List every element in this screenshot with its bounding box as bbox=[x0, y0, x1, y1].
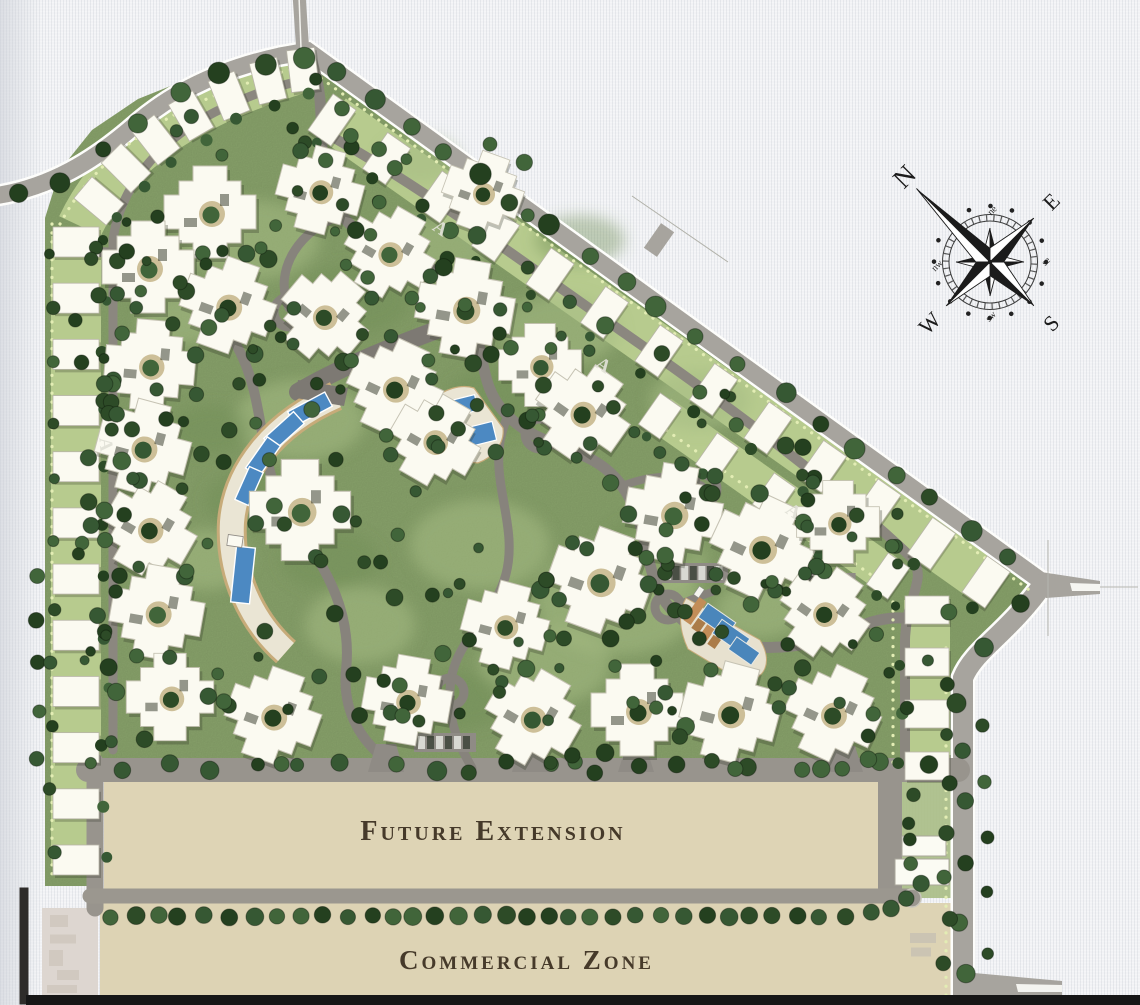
tree bbox=[113, 452, 131, 470]
tree bbox=[522, 302, 532, 312]
tree bbox=[293, 908, 309, 924]
tree bbox=[657, 547, 674, 564]
tree bbox=[427, 761, 446, 780]
tree bbox=[687, 329, 703, 345]
zone-bands bbox=[42, 772, 956, 1004]
tree bbox=[221, 422, 237, 438]
tree bbox=[47, 356, 59, 368]
tree bbox=[861, 729, 875, 743]
plan-detail bbox=[963, 972, 1062, 996]
tree bbox=[709, 567, 723, 581]
tree bbox=[834, 697, 846, 709]
tree bbox=[884, 667, 895, 678]
tree bbox=[136, 731, 153, 748]
tree bbox=[248, 344, 257, 353]
compass-rose: N E S W ne se sw nw bbox=[826, 100, 1126, 400]
tree bbox=[133, 561, 145, 573]
tree bbox=[902, 817, 914, 829]
tree bbox=[283, 704, 294, 715]
tree bbox=[275, 332, 286, 343]
plan-detail bbox=[50, 915, 68, 927]
site-plan-svg: AAAA N E S W ne se sw nw bbox=[0, 0, 1140, 1005]
hedge-bush bbox=[98, 570, 109, 581]
tree bbox=[422, 354, 435, 367]
tree bbox=[958, 855, 974, 871]
tree bbox=[462, 633, 476, 647]
tree bbox=[255, 242, 267, 254]
tree bbox=[789, 908, 806, 925]
tree bbox=[97, 532, 112, 547]
tree bbox=[620, 506, 637, 523]
tree bbox=[340, 259, 351, 270]
tree bbox=[1012, 595, 1030, 613]
tree bbox=[521, 261, 534, 274]
tree bbox=[200, 258, 212, 270]
tree bbox=[336, 198, 349, 211]
courtyard-tree bbox=[533, 360, 548, 375]
compass-se-label: se bbox=[1040, 256, 1053, 269]
tree bbox=[327, 63, 345, 81]
tree bbox=[80, 450, 96, 466]
compass-sw-label: sw bbox=[984, 310, 999, 325]
tree bbox=[751, 485, 769, 503]
tree bbox=[168, 908, 185, 925]
tree bbox=[30, 568, 45, 583]
tree bbox=[680, 492, 692, 504]
plan-detail bbox=[227, 535, 243, 548]
tree bbox=[96, 502, 113, 519]
tree bbox=[361, 271, 375, 285]
tree bbox=[48, 846, 61, 859]
tree bbox=[112, 568, 128, 584]
tree bbox=[49, 474, 59, 484]
tree bbox=[74, 355, 89, 370]
tree bbox=[374, 555, 388, 569]
tree bbox=[654, 346, 670, 362]
tree bbox=[730, 357, 745, 372]
tree bbox=[640, 576, 657, 593]
tree bbox=[358, 556, 371, 569]
tree bbox=[30, 655, 44, 669]
tree bbox=[782, 680, 797, 695]
tree bbox=[270, 220, 282, 232]
tree bbox=[403, 118, 420, 135]
tree bbox=[798, 567, 811, 580]
tree bbox=[238, 245, 255, 262]
tree bbox=[451, 422, 466, 437]
tree bbox=[801, 520, 814, 533]
tree bbox=[860, 751, 877, 768]
tree bbox=[619, 614, 635, 630]
tree bbox=[46, 720, 58, 732]
tree bbox=[293, 143, 309, 159]
tree bbox=[330, 227, 339, 236]
tree bbox=[151, 907, 168, 924]
tree bbox=[416, 199, 430, 213]
tree bbox=[794, 660, 811, 677]
tree bbox=[941, 728, 953, 740]
tree bbox=[571, 452, 582, 463]
tree bbox=[395, 708, 410, 723]
tree bbox=[728, 761, 743, 776]
plan-detail bbox=[57, 970, 79, 980]
tree bbox=[329, 452, 344, 467]
tree bbox=[675, 908, 692, 925]
tree bbox=[159, 412, 174, 427]
tree bbox=[552, 592, 567, 607]
tree bbox=[498, 906, 516, 924]
tree bbox=[692, 632, 706, 646]
tree bbox=[435, 645, 451, 661]
tree bbox=[47, 301, 61, 315]
tree bbox=[582, 909, 598, 925]
tree bbox=[335, 101, 350, 116]
tree bbox=[654, 447, 666, 459]
tree bbox=[565, 536, 579, 550]
tree bbox=[43, 783, 56, 796]
tree bbox=[922, 655, 933, 666]
tree bbox=[178, 416, 189, 427]
tree bbox=[596, 744, 614, 762]
tree bbox=[404, 908, 422, 926]
tree bbox=[545, 342, 557, 354]
compass-south-label: S bbox=[1038, 310, 1064, 336]
tree bbox=[128, 114, 147, 133]
tree bbox=[806, 475, 820, 489]
tree bbox=[501, 404, 514, 417]
tree bbox=[318, 153, 333, 168]
tree bbox=[835, 761, 850, 776]
tree bbox=[904, 857, 918, 871]
tree bbox=[920, 756, 938, 774]
tree bbox=[255, 54, 276, 75]
tree bbox=[488, 664, 499, 675]
courtyard-tree bbox=[203, 207, 220, 224]
tree bbox=[715, 625, 729, 639]
tree bbox=[379, 428, 393, 442]
tree bbox=[410, 486, 421, 497]
tree bbox=[939, 825, 954, 840]
tree bbox=[450, 345, 459, 354]
tree bbox=[171, 82, 191, 102]
tree bbox=[811, 909, 827, 925]
tree bbox=[454, 708, 465, 719]
tree bbox=[940, 677, 954, 691]
tree bbox=[978, 775, 992, 789]
tree bbox=[352, 707, 368, 723]
tree bbox=[443, 588, 453, 598]
tree bbox=[766, 575, 779, 588]
tree bbox=[405, 291, 419, 305]
tree bbox=[493, 686, 506, 699]
tree bbox=[999, 549, 1015, 565]
tree bbox=[96, 142, 111, 157]
tree bbox=[584, 345, 596, 357]
tree bbox=[556, 631, 571, 646]
tree bbox=[704, 663, 718, 677]
tree bbox=[866, 707, 880, 721]
tree bbox=[287, 122, 299, 134]
tree bbox=[936, 956, 951, 971]
tree bbox=[253, 373, 266, 386]
tree bbox=[202, 538, 213, 549]
tree bbox=[941, 604, 957, 620]
tree bbox=[365, 291, 379, 305]
tree bbox=[937, 870, 951, 884]
tree bbox=[99, 353, 109, 363]
tree bbox=[208, 62, 230, 84]
tree bbox=[795, 762, 810, 777]
compass-ne-label: ne bbox=[986, 204, 999, 217]
tree bbox=[364, 228, 377, 241]
tree bbox=[592, 381, 603, 392]
tree bbox=[127, 907, 145, 925]
tree bbox=[257, 623, 273, 639]
tree bbox=[678, 604, 693, 619]
tree bbox=[435, 144, 452, 161]
tree bbox=[535, 377, 551, 393]
tree bbox=[534, 437, 544, 447]
courtyard-tree bbox=[292, 504, 311, 523]
tree bbox=[274, 756, 289, 771]
tree bbox=[942, 776, 957, 791]
tree bbox=[340, 909, 355, 924]
tree bbox=[465, 355, 482, 372]
tree bbox=[347, 222, 364, 239]
tree bbox=[580, 542, 594, 556]
compass-east-label: E bbox=[1038, 188, 1065, 215]
tree bbox=[645, 296, 666, 317]
tree bbox=[365, 89, 385, 109]
tree bbox=[151, 210, 164, 223]
tree bbox=[672, 729, 688, 745]
tree bbox=[741, 907, 758, 924]
tree bbox=[385, 909, 401, 925]
plan-detail bbox=[1016, 984, 1062, 992]
tree bbox=[493, 327, 507, 341]
tree bbox=[563, 295, 577, 309]
tree bbox=[813, 416, 829, 432]
tree bbox=[658, 685, 673, 700]
tree bbox=[514, 637, 524, 647]
parked-car bbox=[690, 566, 697, 580]
master-plan-page: AAAA N E S W ne se sw nw Future Extensio… bbox=[0, 0, 1140, 1005]
tree bbox=[627, 907, 643, 923]
tree bbox=[80, 494, 97, 511]
tree bbox=[582, 248, 599, 265]
tree bbox=[711, 585, 721, 595]
tree bbox=[699, 907, 715, 923]
tree bbox=[84, 252, 97, 265]
tree bbox=[848, 639, 857, 648]
tree bbox=[115, 326, 130, 341]
tree bbox=[597, 317, 614, 334]
tree bbox=[863, 904, 879, 920]
tree bbox=[653, 907, 668, 922]
tree bbox=[333, 506, 350, 523]
tree bbox=[764, 907, 780, 923]
courtyard-tree bbox=[831, 517, 846, 532]
tree bbox=[982, 948, 994, 960]
plan-detail bbox=[50, 935, 76, 944]
tree bbox=[675, 457, 690, 472]
plan-detail bbox=[910, 933, 936, 943]
tree bbox=[195, 907, 212, 924]
tree bbox=[564, 748, 580, 764]
tree bbox=[372, 142, 387, 157]
hedge-bush bbox=[97, 801, 109, 813]
tree bbox=[89, 608, 105, 624]
tree bbox=[544, 630, 556, 642]
plan-detail bbox=[49, 950, 63, 966]
tree bbox=[83, 517, 99, 533]
tree bbox=[483, 346, 499, 362]
tree bbox=[161, 755, 178, 772]
tree bbox=[707, 468, 723, 484]
tree bbox=[426, 373, 438, 385]
tree bbox=[776, 383, 796, 403]
tree bbox=[560, 909, 576, 925]
tree bbox=[48, 535, 59, 546]
tree bbox=[501, 194, 518, 211]
tree bbox=[312, 669, 327, 684]
tree bbox=[981, 886, 993, 898]
tree bbox=[184, 109, 198, 123]
tree bbox=[483, 137, 497, 151]
tree bbox=[107, 683, 124, 700]
tree bbox=[86, 647, 96, 657]
tree bbox=[883, 900, 900, 917]
tree bbox=[461, 765, 476, 780]
tree bbox=[693, 385, 707, 399]
tree bbox=[668, 706, 677, 715]
tree bbox=[189, 387, 203, 401]
tree bbox=[343, 128, 358, 143]
tree bbox=[201, 319, 217, 335]
tree bbox=[251, 758, 264, 771]
tree bbox=[521, 209, 534, 222]
tree bbox=[602, 630, 619, 647]
tree bbox=[117, 507, 132, 522]
tree bbox=[187, 347, 204, 364]
tree bbox=[165, 317, 179, 331]
tree bbox=[907, 788, 921, 802]
tree bbox=[812, 760, 829, 777]
tree bbox=[942, 911, 957, 926]
tree bbox=[200, 761, 218, 779]
tree bbox=[704, 486, 720, 502]
tree bbox=[48, 604, 60, 616]
tree bbox=[518, 908, 535, 925]
tree bbox=[849, 508, 864, 523]
tree bbox=[314, 907, 330, 923]
tree bbox=[50, 173, 70, 193]
tree bbox=[651, 655, 662, 666]
tree bbox=[539, 572, 555, 588]
tree bbox=[356, 328, 368, 340]
tree bbox=[429, 405, 444, 420]
tree bbox=[119, 244, 135, 260]
tree bbox=[587, 765, 603, 781]
tree bbox=[777, 437, 794, 454]
tree bbox=[474, 906, 491, 923]
tree bbox=[921, 489, 937, 505]
tree bbox=[458, 298, 472, 312]
tree bbox=[704, 753, 719, 768]
tree bbox=[720, 908, 738, 926]
plan-detail bbox=[1070, 583, 1100, 591]
tree bbox=[105, 736, 117, 748]
scan-edge-bar bbox=[26, 995, 1140, 1005]
tree bbox=[110, 287, 124, 301]
tree bbox=[629, 427, 640, 438]
tree bbox=[649, 701, 662, 714]
tree bbox=[504, 340, 519, 355]
tree bbox=[729, 418, 743, 432]
tree bbox=[101, 630, 112, 641]
tree bbox=[277, 517, 292, 532]
tree bbox=[142, 256, 151, 265]
tree bbox=[694, 517, 709, 532]
tree bbox=[947, 694, 966, 713]
parked-car bbox=[681, 566, 688, 580]
tree bbox=[216, 149, 228, 161]
tree bbox=[290, 758, 303, 771]
tree bbox=[326, 605, 343, 622]
tree bbox=[401, 154, 412, 165]
tree bbox=[609, 660, 622, 673]
hedge-bush bbox=[101, 852, 112, 863]
tree bbox=[173, 275, 187, 289]
tree bbox=[668, 756, 685, 773]
tree bbox=[728, 572, 741, 585]
tree bbox=[365, 908, 380, 923]
tree bbox=[525, 409, 538, 422]
tree bbox=[331, 754, 348, 771]
tree bbox=[583, 437, 597, 451]
tree bbox=[892, 508, 904, 520]
tree bbox=[293, 47, 315, 69]
tree bbox=[468, 226, 486, 244]
tree bbox=[233, 377, 246, 390]
tree bbox=[772, 701, 786, 715]
parked-car bbox=[454, 736, 461, 749]
tree bbox=[129, 649, 143, 663]
parked-car bbox=[463, 736, 470, 749]
tree bbox=[350, 516, 361, 527]
tree bbox=[631, 758, 647, 774]
tree bbox=[493, 303, 506, 316]
tree bbox=[450, 907, 468, 925]
tree bbox=[470, 398, 483, 411]
tree bbox=[606, 400, 620, 414]
tree bbox=[384, 329, 398, 343]
tree bbox=[913, 875, 930, 892]
tree bbox=[200, 688, 217, 705]
tree bbox=[254, 652, 263, 661]
tree bbox=[892, 559, 902, 569]
tree bbox=[127, 472, 140, 485]
tree bbox=[488, 444, 504, 460]
hedge-bush bbox=[892, 757, 904, 769]
tree bbox=[216, 454, 231, 469]
tree bbox=[618, 273, 636, 291]
hedge-bush bbox=[894, 660, 905, 671]
tree bbox=[781, 638, 795, 652]
tree bbox=[391, 528, 405, 542]
tree bbox=[33, 705, 46, 718]
tree bbox=[795, 439, 812, 456]
